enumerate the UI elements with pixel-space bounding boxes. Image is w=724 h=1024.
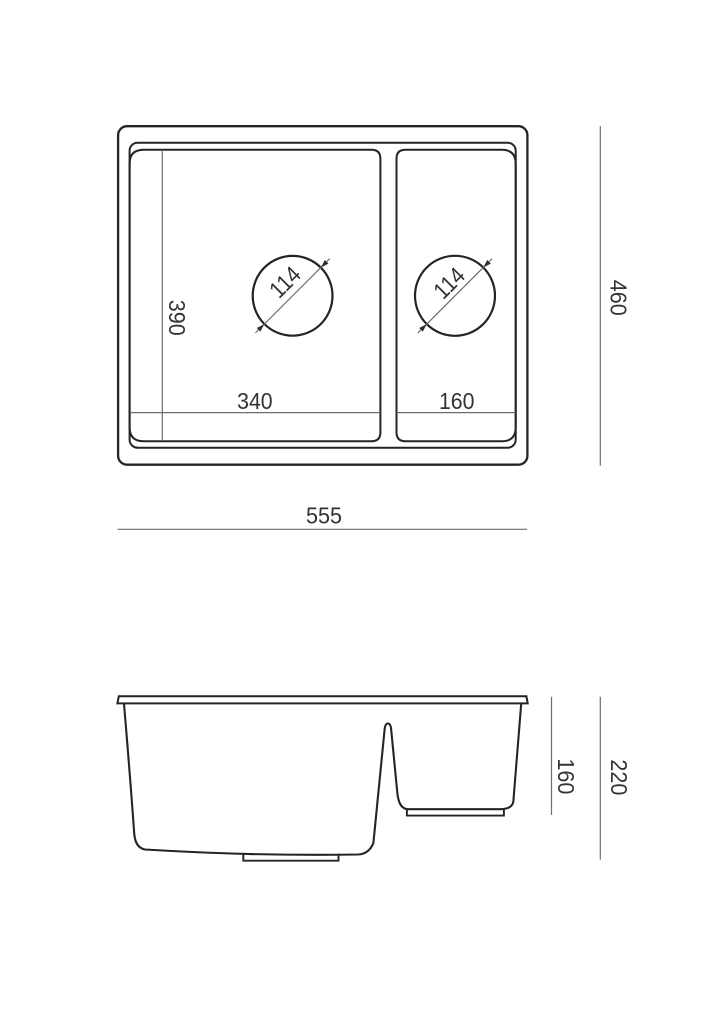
svg-text:340: 340: [237, 388, 273, 414]
svg-text:555: 555: [306, 503, 342, 529]
svg-text:460: 460: [605, 280, 631, 316]
svg-text:390: 390: [164, 300, 190, 336]
svg-text:220: 220: [606, 759, 632, 795]
svg-text:160: 160: [553, 758, 579, 794]
svg-text:160: 160: [439, 388, 475, 414]
